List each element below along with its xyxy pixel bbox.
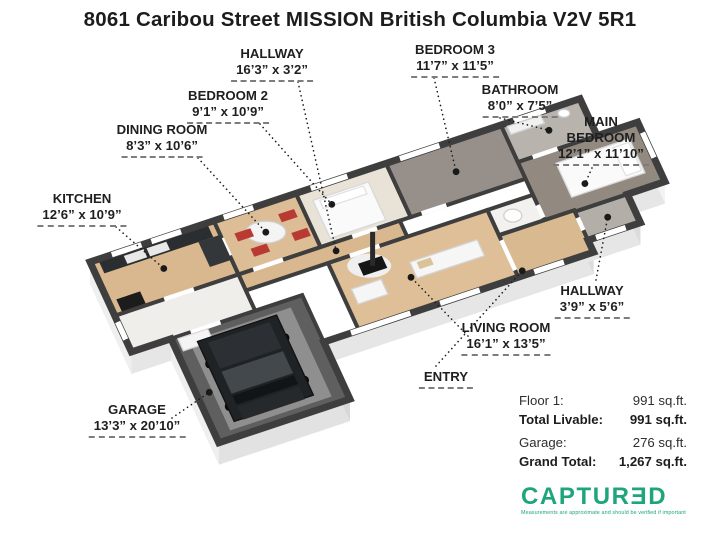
captur3d-tagline: Measurements are approximate and should …	[521, 510, 691, 516]
floorplan-page: 8061 Caribou Street MISSION British Colu…	[0, 0, 720, 540]
summary-label: Garage:	[519, 434, 567, 453]
summary-value: 991 sq.ft.	[633, 392, 687, 411]
summary-value: 1,267 sq.ft.	[619, 453, 687, 472]
captur3d-logo-text: CAPTURƎD	[521, 484, 691, 509]
summary-value: 991 sq.ft.	[630, 411, 687, 430]
captur3d-logo: CAPTURƎD Measurements are approximate an…	[521, 484, 691, 516]
summary-label: Grand Total:	[519, 453, 596, 472]
area-summary-table: Floor 1: 991 sq.ft. Total Livable: 991 s…	[519, 392, 687, 471]
summary-row-total-livable: Total Livable: 991 sq.ft.	[519, 411, 687, 430]
summary-row-floor1: Floor 1: 991 sq.ft.	[519, 392, 687, 411]
summary-label: Total Livable:	[519, 411, 603, 430]
summary-row-grand-total: Grand Total: 1,267 sq.ft.	[519, 453, 687, 472]
summary-row-garage: Garage: 276 sq.ft.	[519, 434, 687, 453]
summary-label: Floor 1:	[519, 392, 564, 411]
summary-value: 276 sq.ft.	[633, 434, 687, 453]
